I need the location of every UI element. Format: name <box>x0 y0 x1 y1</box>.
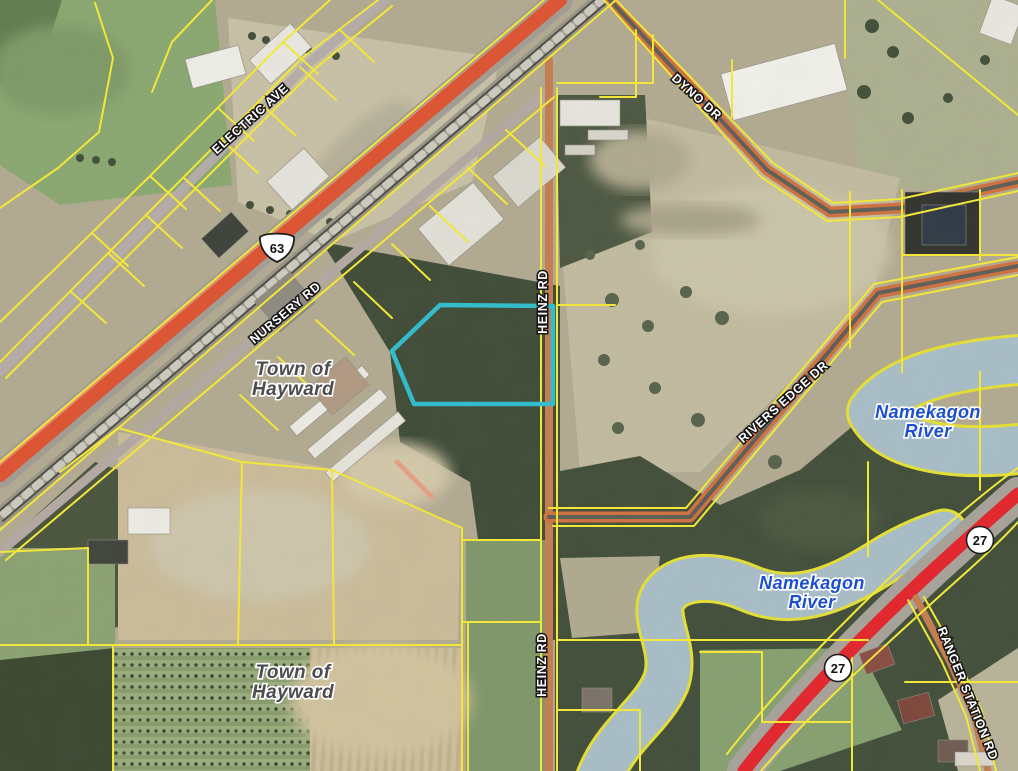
photo-grain-coarse <box>0 0 1018 771</box>
svg-text:River: River <box>904 421 952 441</box>
road-label-heinz-rd-north: HEINZ RD <box>536 270 550 334</box>
svg-text:Namekagon: Namekagon <box>875 402 981 422</box>
place-label-town-of-hayward-south: Town of Hayward <box>252 662 334 703</box>
svg-text:63: 63 <box>270 241 284 256</box>
svg-text:Hayward: Hayward <box>252 682 334 703</box>
road-label-heinz-rd-south: HEINZ RD <box>535 633 549 697</box>
svg-text:27: 27 <box>973 533 987 548</box>
svg-text:Namekagon: Namekagon <box>759 573 865 593</box>
hwy-27-shield-upper: 27 <box>967 527 994 554</box>
svg-text:Town of: Town of <box>256 662 332 683</box>
svg-text:River: River <box>788 592 836 612</box>
hwy-27-shield-lower: 27 <box>825 655 852 682</box>
svg-text:27: 27 <box>831 661 845 676</box>
parcel-map-canvas[interactable]: ELECTRIC AVE NURSERY RD DYNO DR HEINZ RD… <box>0 0 1018 771</box>
parcel-map-viewport[interactable]: ELECTRIC AVE NURSERY RD DYNO DR HEINZ RD… <box>0 0 1018 771</box>
svg-text:Town of: Town of <box>256 359 332 380</box>
place-label-town-of-hayward-north: Town of Hayward <box>252 359 334 400</box>
svg-text:Hayward: Hayward <box>252 379 334 400</box>
